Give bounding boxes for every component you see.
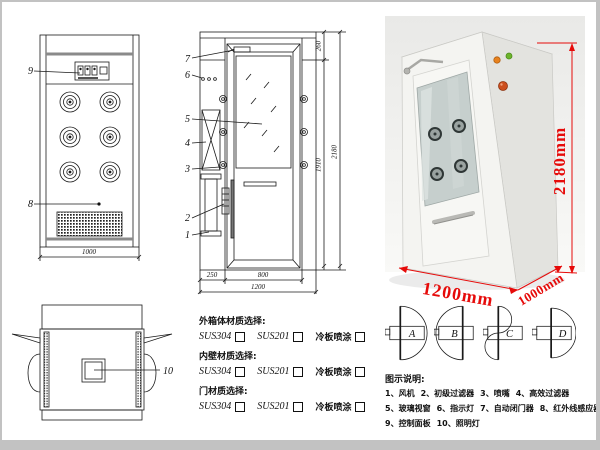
label-8-leader: 8 — [28, 199, 101, 210]
orange-indicator-light — [494, 57, 500, 63]
door-config-a: A — [385, 302, 429, 364]
label-1: 1 — [185, 230, 190, 241]
legend-item: 9、控制面板 — [385, 418, 431, 429]
config-letter-d: D — [558, 329, 567, 340]
door-config-d: D — [532, 302, 576, 364]
legend-row: 9、控制面板 10、照明灯 — [385, 418, 597, 429]
option-sus201: SUS201 — [257, 366, 289, 377]
label-4: 4 — [185, 138, 190, 149]
label-6: 6 — [185, 70, 190, 81]
legend-item: 4、高效过滤器 — [516, 388, 570, 399]
material-checkbox[interactable] — [355, 367, 365, 377]
material-options-row: SUS304 SUS201 冷板喷涂 — [199, 330, 381, 343]
infrared-sensor-dot — [97, 202, 100, 205]
return-air-grille — [57, 212, 122, 236]
nozzle — [60, 127, 80, 147]
legend-item: 8、红外线感应器 — [540, 403, 600, 414]
material-checkbox[interactable] — [235, 402, 245, 412]
material-checkbox[interactable] — [355, 332, 365, 342]
option-coldplate: 冷板喷涂 — [315, 400, 351, 413]
air-shower-spec-sheet: 9 8 1000 — [0, 0, 600, 450]
door-config-c: C — [483, 302, 527, 364]
legend-item: 2、初级过滤器 — [421, 388, 475, 399]
option-coldplate: 冷板喷涂 — [315, 330, 351, 343]
material-checkbox[interactable] — [235, 332, 245, 342]
nozzle — [100, 127, 120, 147]
dim-800: 800 — [258, 271, 269, 279]
material-checkbox[interactable] — [235, 367, 245, 377]
nozzle-grid — [60, 92, 120, 182]
label-7: 7 — [185, 54, 191, 65]
nozzle — [429, 128, 441, 140]
legend-title: 图示说明: — [385, 372, 597, 385]
door — [227, 44, 300, 268]
nozzle — [60, 92, 80, 112]
config-letter-c: C — [506, 329, 514, 340]
option-sus201: SUS201 — [257, 331, 289, 342]
label-10-leader: 10 — [94, 366, 173, 377]
option-coldplate: 冷板喷涂 — [315, 365, 351, 378]
nozzle — [100, 162, 120, 182]
top-view-drawing: 10 — [10, 294, 192, 439]
label-8: 8 — [28, 199, 33, 210]
photo-dim-height: 2180mm — [550, 127, 569, 195]
dim-1200: 1200 — [251, 283, 266, 291]
option-sus304: SUS304 — [199, 401, 231, 412]
door-swing-left — [12, 334, 40, 392]
legend-row: 5、玻璃视窗 6、指示灯 7、自动闭门器 8、红外线感应器 — [385, 403, 597, 414]
control-panel — [75, 62, 109, 80]
label-9: 9 — [28, 66, 33, 77]
glass-reflection-marks — [244, 74, 279, 152]
material-group-title: 内壁材质选择: — [199, 349, 381, 362]
plenum-top — [42, 305, 142, 329]
dim-260: 260 — [315, 40, 323, 51]
cabinet-outline — [200, 32, 316, 270]
dim-250: 250 — [207, 271, 218, 279]
width-dimension: 1000 — [38, 247, 141, 261]
part-labels: 7 6 5 4 3 2 1 — [184, 50, 262, 241]
door-handle-slot — [244, 182, 276, 186]
material-checkbox[interactable] — [293, 332, 303, 342]
legend: 图示说明: 1、风机 2、初级过滤器 3、喷嘴 4、高效过滤器 5、玻璃视窗 6… — [385, 372, 597, 433]
hepa-filter-box — [202, 110, 220, 170]
label-10: 10 — [163, 366, 173, 377]
fan-filter-column — [201, 174, 234, 238]
knob-highlight — [500, 83, 502, 85]
door-swing-right — [144, 334, 172, 392]
label-2: 2 — [185, 213, 190, 224]
label-3: 3 — [184, 164, 190, 175]
material-checkbox[interactable] — [293, 402, 303, 412]
option-sus201: SUS201 — [257, 401, 289, 412]
legend-item: 3、喷嘴 — [480, 388, 510, 399]
material-options-row: SUS304 SUS201 冷板喷涂 — [199, 365, 381, 378]
legend-item: 7、自动闭门器 — [480, 403, 534, 414]
config-letter-a: A — [408, 329, 416, 340]
height-dimensions: 260 1910 2180 — [315, 30, 347, 270]
product-photo: 2180mm 1200mm 1000mm — [385, 16, 585, 316]
nozzle — [453, 120, 465, 132]
material-checkbox[interactable] — [355, 402, 365, 412]
legend-item: 6、指示灯 — [437, 403, 475, 414]
legend-item: 10、照明灯 — [437, 418, 480, 429]
material-group-title: 门材质选择: — [199, 384, 381, 397]
legend-row: 1、风机 2、初级过滤器 3、喷嘴 4、高效过滤器 — [385, 388, 597, 399]
material-checkbox[interactable] — [293, 367, 303, 377]
option-sus304: SUS304 — [199, 331, 231, 342]
dim-1910: 1910 — [315, 158, 323, 173]
emergency-knob — [499, 82, 508, 91]
legend-item: 1、风机 — [385, 388, 415, 399]
legend-item: 5、玻璃视窗 — [385, 403, 431, 414]
config-letter-b: B — [451, 329, 458, 340]
material-options-row: SUS304 SUS201 冷板喷涂 — [199, 400, 381, 413]
label-5: 5 — [185, 114, 190, 125]
width-dimensions: 250 800 1200 — [198, 270, 318, 294]
glass-window — [236, 56, 291, 168]
nozzle — [60, 162, 80, 182]
door-config-b: B — [434, 302, 478, 364]
dim-1000: 1000 — [82, 248, 97, 256]
front-view-drawing: 9 8 1000 — [22, 28, 172, 268]
nozzle — [455, 160, 467, 172]
side-nozzles — [220, 96, 308, 169]
green-indicator-light — [506, 53, 512, 59]
ceiling-lamp — [82, 359, 105, 382]
door-config-options: A B C — [385, 302, 585, 364]
option-sus304: SUS304 — [199, 366, 231, 377]
chamber-body — [40, 329, 144, 420]
indicator-lights — [202, 78, 217, 81]
dim-2180: 2180 — [331, 145, 339, 160]
side-view-drawing: 7 6 5 4 3 2 1 260 1910 2180 — [174, 22, 379, 300]
nozzle — [431, 168, 443, 180]
nozzle — [100, 92, 120, 112]
material-selection: 外箱体材质选择: SUS304 SUS201 冷板喷涂 内壁材质选择: SUS3… — [199, 314, 381, 419]
label-9-leader: 9 — [28, 66, 80, 77]
material-group-title: 外箱体材质选择: — [199, 314, 381, 327]
